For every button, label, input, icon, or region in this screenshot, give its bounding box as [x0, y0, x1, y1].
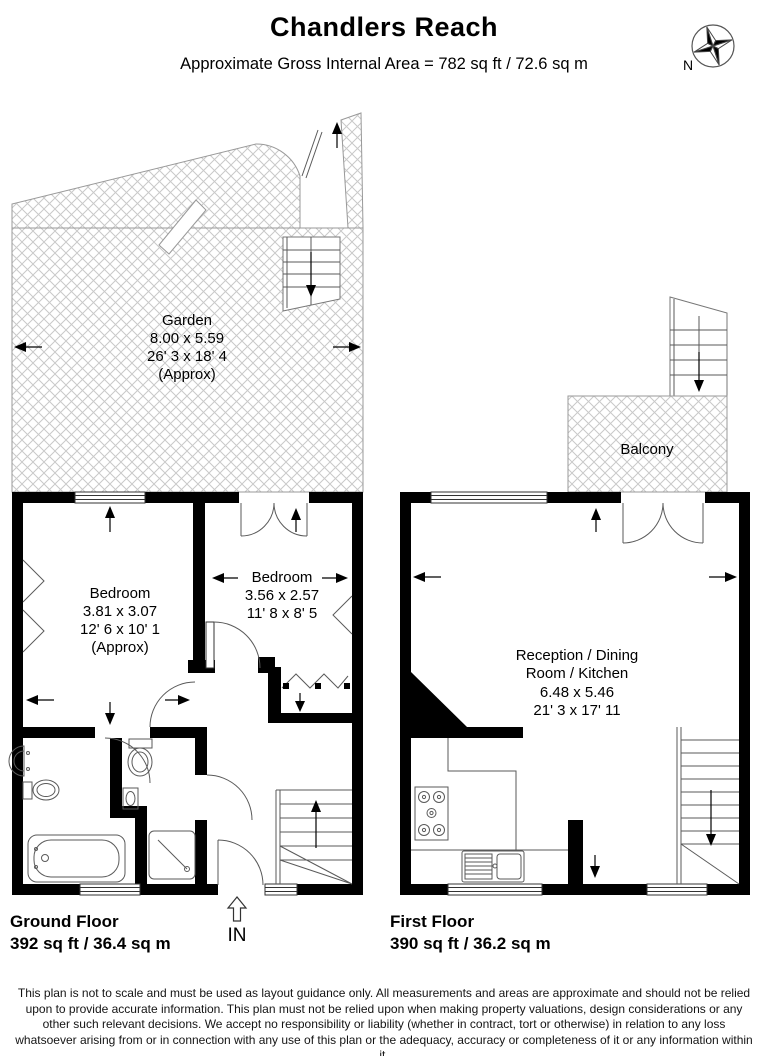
bedroom2-imperial: 11' 8 x 8' 5	[247, 605, 318, 622]
disclaimer-text: This plan is not to scale and must be us…	[14, 986, 754, 1056]
bathtub	[28, 835, 125, 882]
first-floor-title: First Floor	[390, 911, 551, 933]
balcony-french-doors	[623, 503, 703, 543]
reception-name-line2: Room / Kitchen	[526, 665, 629, 682]
garden-name: Garden	[162, 312, 212, 329]
ground-floor-area: 392 sq ft / 36.4 sq m	[10, 933, 171, 955]
ground-floor-stairs	[276, 790, 352, 884]
floorplan-drawing: N	[0, 0, 768, 1056]
reception-metric: 6.48 x 5.46	[540, 684, 614, 701]
window	[448, 884, 542, 895]
bedroom1-metric: 3.81 x 3.07	[83, 603, 157, 620]
sink	[462, 851, 524, 882]
garden-area: Garden 8.00 x 5.59 26' 3 x 18' 4 (Approx…	[12, 113, 363, 492]
garden-exit-arrow-icon	[332, 122, 342, 148]
ground-floor-label: Ground Floor 392 sq ft / 36.4 sq m	[10, 911, 171, 955]
window	[80, 884, 140, 895]
door-bedroom1	[150, 682, 195, 727]
external-stairs	[670, 297, 727, 396]
bedroom1-approx: (Approx)	[91, 639, 149, 656]
garden-approx: (Approx)	[158, 366, 216, 383]
bedroom2-name: Bedroom	[252, 569, 313, 586]
entrance-door	[218, 840, 263, 885]
garden-metric: 8.00 x 5.59	[150, 330, 224, 347]
bedroom1-name: Bedroom	[90, 585, 151, 602]
floorplan-page: Chandlers Reach Approximate Gross Intern…	[0, 0, 768, 1056]
window	[431, 492, 547, 503]
balcony-area: Balcony	[568, 396, 727, 492]
garden-stairs	[283, 237, 340, 311]
window	[647, 884, 707, 895]
bedroom2-metric: 3.56 x 2.57	[245, 587, 319, 604]
ground-floor-title: Ground Floor	[10, 911, 171, 933]
ground-floor-plan: Garden 8.00 x 5.59 26' 3 x 18' 4 (Approx…	[9, 113, 363, 946]
toilet	[23, 780, 59, 800]
compass-north-label: N	[683, 57, 693, 73]
window	[265, 884, 297, 895]
first-floor-stairs	[677, 727, 739, 884]
bathroom-fixtures	[9, 739, 195, 882]
bedroom1-imperial: 12' 6 x 10' 1	[80, 621, 160, 638]
door-shower-room	[207, 775, 252, 820]
door-hall	[206, 622, 260, 668]
first-floor-label: First Floor 390 sq ft / 36.2 sq m	[390, 911, 551, 955]
reception-name-line1: Reception / Dining	[516, 647, 639, 664]
entrance-label: IN	[228, 925, 247, 946]
kitchen	[411, 738, 568, 882]
basin	[123, 788, 138, 809]
first-floor-plan: Balcony	[400, 297, 750, 895]
window	[75, 492, 145, 503]
compass-north-icon: N	[683, 21, 738, 73]
reception-imperial: 21' 3 x 17' 11	[533, 702, 620, 719]
first-floor-area: 390 sq ft / 36.2 sq m	[390, 933, 551, 955]
hob	[415, 787, 448, 840]
balcony-name: Balcony	[620, 441, 674, 458]
garden-gate	[302, 130, 322, 178]
entrance-arrow-icon	[228, 897, 246, 921]
entrance-in-marker: IN	[228, 897, 247, 946]
shower-tray	[149, 831, 195, 879]
garden-imperial: 26' 3 x 18' 4	[147, 348, 227, 365]
